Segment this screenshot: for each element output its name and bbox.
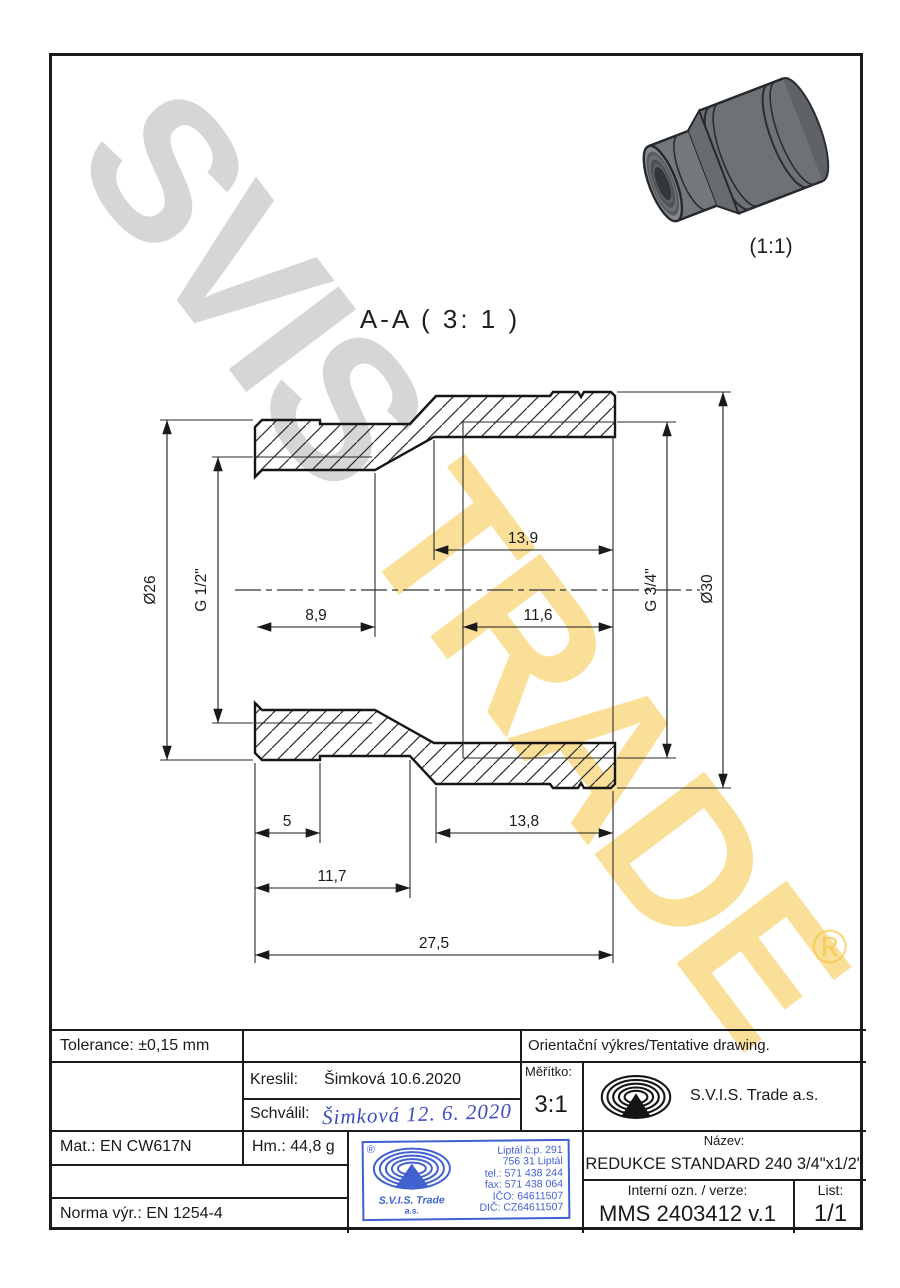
kreslil-value: Šimková 10.6.2020 [324,1071,461,1089]
stamp-address-line: DIČ: CZ64611507 [459,1202,563,1215]
drawing-sheet: SVIS TRADE ® A-A ( 3: 1 ) [0,0,900,1288]
interni-value: MMS 2403412 v.1 [582,1198,793,1230]
lower-wall [255,703,615,788]
dim-small-end-length: 11,7 [317,868,346,885]
tb-line [49,1164,347,1166]
list-label: List: [795,1181,866,1199]
schvalil-label: Schválil: [250,1105,310,1123]
extension-lines [160,392,731,963]
pictorial-scale-label: (1:1) [749,235,792,258]
standard-text: Norma výr.: EN 1254-4 [60,1197,223,1231]
dim-thread-depth-small: 8,9 [305,607,327,624]
stamp-logo-icon [369,1146,453,1191]
dim-thread-small: G 1/2" [193,568,210,611]
stamp-registered-icon: ® [367,1144,375,1156]
schvalil-row: Schválil: Šimková 12. 6. 2020 [250,1098,511,1130]
material-text: Mat.: EN CW617N [60,1130,192,1164]
dimension-lines [167,392,723,955]
nazev-label: Název: [582,1132,866,1148]
dim-outer-dia-small: Ø26 [142,575,159,604]
dim-large-end-length: 13,8 [509,813,539,830]
stamp-address: Liptál č.p. 291 756 31 Liptál tel.: 571 … [459,1144,569,1214]
dim-bore-depth-large: 13,9 [508,530,538,547]
interni-label: Interní ozn. / verze: [582,1181,793,1199]
upper-wall [255,392,615,477]
company-logo-icon [598,1074,674,1120]
nazev-value: REDUKCE STANDARD 240 3/4"x1/2" [582,1150,866,1178]
schvalil-signature: Šimková 12. 6. 2020 [321,1098,512,1130]
dim-thread-depth-large: 11,6 [523,607,552,624]
pictorial-render [631,72,839,239]
tb-line [347,1130,349,1233]
company-stamp: ® S.V.I.S. Trade a.s. Liptál č.p. 291 75… [362,1139,571,1221]
stamp-logo-block: S.V.I.S. Trade a.s. [364,1146,460,1216]
tb-line [242,1029,244,1165]
dim-thread-large: G 3/4" [643,568,660,611]
dim-groove-offset-small: 5 [283,813,292,830]
kreslil-label: Kreslil: [250,1071,298,1089]
company-name: S.V.I.S. Trade a.s. [690,1061,818,1130]
mass-text: Hm.: 44,8 g [252,1130,335,1164]
kreslil-row: Kreslil: Šimková 10.6.2020 [250,1061,461,1098]
meritko-value: 3:1 [520,1085,582,1125]
list-value: 1/1 [795,1198,866,1230]
dim-total-length: 27,5 [419,935,449,952]
orientation-note: Orientační výkres/Tentative drawing. [528,1029,770,1062]
dim-outer-dia-large: Ø30 [699,574,716,604]
tolerance-text: Tolerance: ±0,15 mm [60,1029,209,1062]
section-view-title: A-A ( 3: 1 ) [360,304,520,334]
meritko-label: Měřítko: [525,1063,572,1079]
